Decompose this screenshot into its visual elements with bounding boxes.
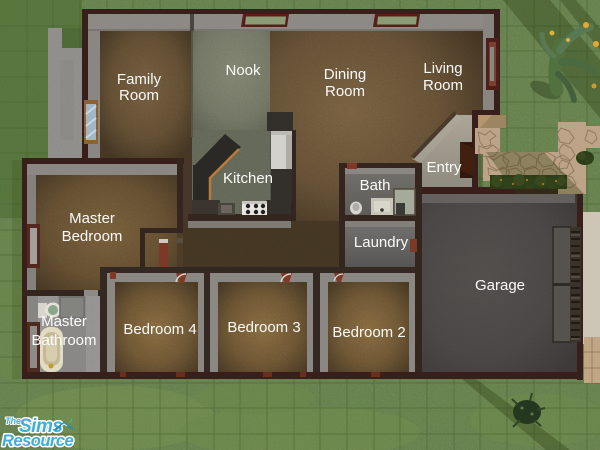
svg-text:Garage: Garage <box>475 277 525 294</box>
svg-text:Resource: Resource <box>2 432 74 450</box>
svg-text:Entry: Entry <box>426 159 462 176</box>
svg-text:Master: Master <box>69 210 115 227</box>
svg-text:Living: Living <box>423 60 462 77</box>
svg-text:Bedroom 2: Bedroom 2 <box>332 324 405 341</box>
svg-text:Bedroom: Bedroom <box>62 228 123 245</box>
svg-text:Bathroom: Bathroom <box>31 332 96 349</box>
svg-text:Bath: Bath <box>360 177 391 194</box>
svg-text:Bedroom 4: Bedroom 4 <box>123 321 196 338</box>
svg-text:Room: Room <box>423 77 463 94</box>
svg-text:Laundry: Laundry <box>354 234 409 251</box>
svg-text:Bedroom 3: Bedroom 3 <box>227 319 300 336</box>
svg-text:Family: Family <box>117 71 162 88</box>
svg-text:Master: Master <box>41 313 87 330</box>
svg-text:Kitchen: Kitchen <box>223 170 273 187</box>
svg-text:Nook: Nook <box>225 62 261 79</box>
svg-text:Room: Room <box>119 87 159 104</box>
svg-text:Dining: Dining <box>324 66 367 83</box>
svg-text:Room: Room <box>325 83 365 100</box>
